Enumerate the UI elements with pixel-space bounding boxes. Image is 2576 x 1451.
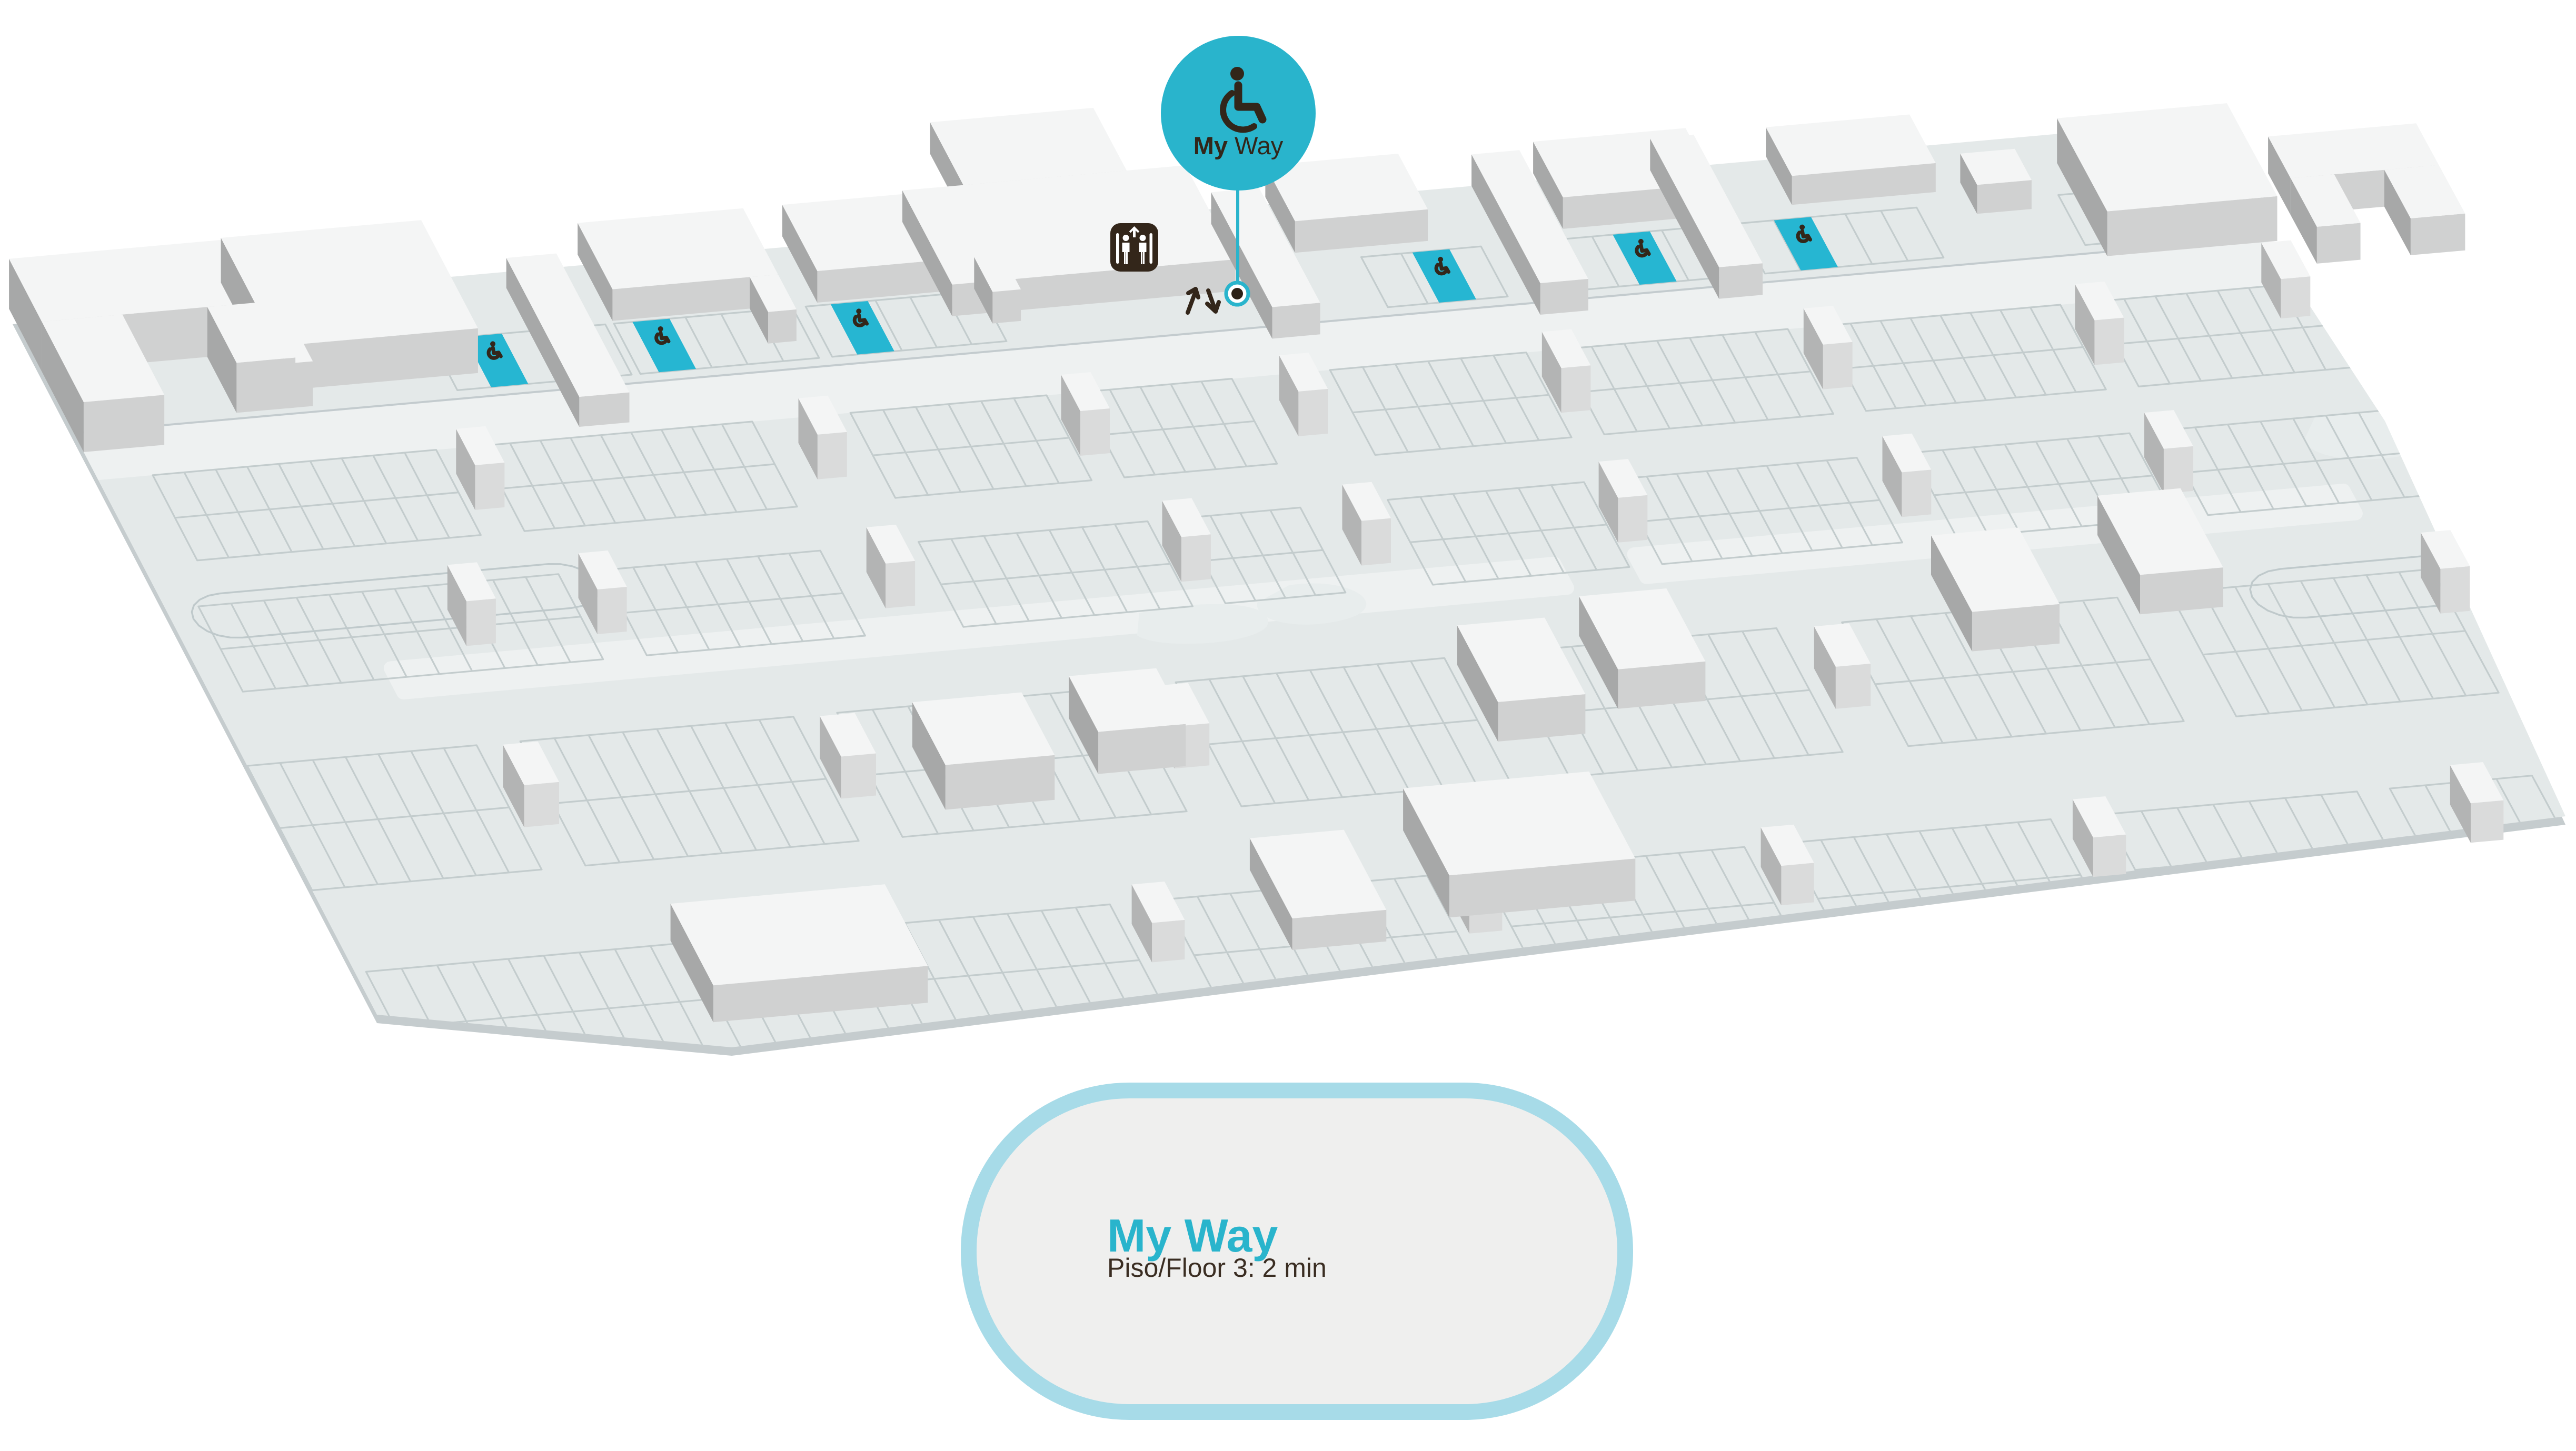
svg-text:My Way: My Way	[1193, 132, 1284, 159]
svg-text:Piso/Floor 3: 2 min: Piso/Floor 3: 2 min	[1107, 1253, 1327, 1283]
